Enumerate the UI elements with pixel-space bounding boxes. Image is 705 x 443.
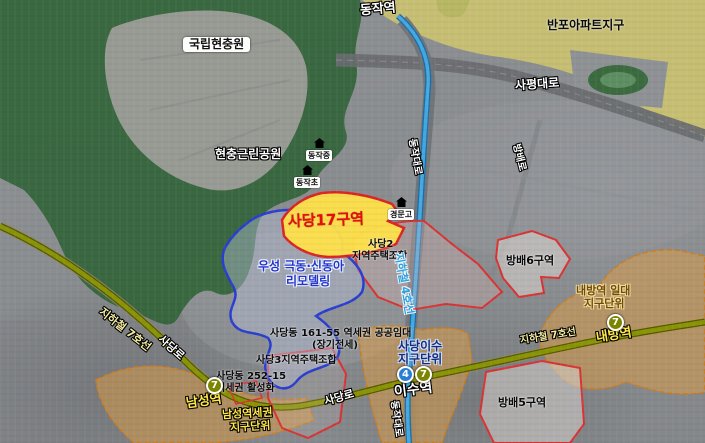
label-banpo-district: 반포아파트지구 <box>547 19 624 32</box>
label-woosung-line1: 우성 극동·신동아 <box>258 260 344 273</box>
label-sadang17: 사당17구역 <box>288 212 365 230</box>
label-naebang-unit-line2: 지구단위 <box>584 298 624 310</box>
line7-badge-isu: 7 <box>415 366 432 383</box>
label-namseong-unit-line2: 지구단위 <box>230 420 271 434</box>
label-bangbae6: 방배6구역 <box>506 255 554 267</box>
school-label: 동작초 <box>294 177 320 188</box>
label-woosung-line2: 리모델링 <box>286 275 330 288</box>
line4-badge-isu: 4 <box>397 366 414 383</box>
label-sadang-isu-line2: 지구단위 <box>398 353 442 366</box>
station-label-dongjak: 동작역 <box>359 1 396 18</box>
label-national-cemetery: 국립현충원 <box>183 37 250 52</box>
stadium-infield <box>600 72 636 88</box>
school-icon <box>395 197 408 208</box>
label-sadang161-line2: (장기전세) <box>312 341 358 352</box>
line7-badge-naebang: 7 <box>607 314 624 331</box>
school-label: 경문고 <box>388 209 414 220</box>
road-label-sapyeong-daero: 사평대로 <box>515 76 560 92</box>
label-hyeonchung-park: 현충근린공원 <box>215 148 281 161</box>
school-marker-gyeongmun-high: 경문고 <box>388 197 414 220</box>
label-bangbae5: 방배5구역 <box>498 397 546 409</box>
label-sadang252-line2: 역세권 활성화 <box>216 384 275 395</box>
satellite-map: 동작역 남성역 이수역 내방역 반포아파트지구 국립현충원 현충근린공원 사당1… <box>0 0 705 443</box>
school-marker-dongjak-middle: 동작중 <box>306 138 332 161</box>
label-naebang-unit-line1: 내방역 일대 <box>576 285 630 297</box>
line7-badge-namseong: 7 <box>206 377 223 394</box>
label-sadang161-line1: 사당동 161-55 역세권 공공임대 <box>270 329 411 340</box>
label-sadang252-line1: 사당동 252-15 <box>216 372 286 383</box>
label-sadang2-line1: 사당2 <box>368 240 393 251</box>
school-label: 동작중 <box>306 150 332 161</box>
school-icon <box>313 138 326 149</box>
school-marker-dongjak-elementary: 동작초 <box>294 165 320 188</box>
label-sadang-isu-line1: 사당이수 <box>398 340 442 353</box>
label-sadang3: 사당3지역주택조합 <box>256 356 337 367</box>
school-icon <box>301 165 314 176</box>
